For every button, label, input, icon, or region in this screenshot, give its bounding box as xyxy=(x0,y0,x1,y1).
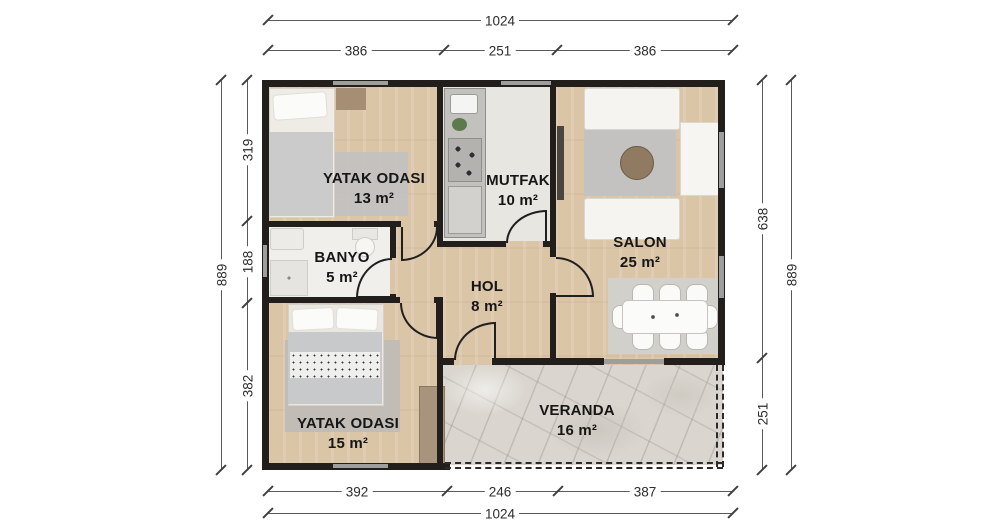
dim-left-total: 889 xyxy=(215,260,230,291)
wall-veranda-top-b xyxy=(492,358,604,365)
dim-bottom-seg-2: 246 xyxy=(485,485,516,500)
window-kitchen-top xyxy=(501,81,551,85)
room-name: SALON xyxy=(613,233,667,253)
room-label-bedroom2: YATAK ODASI 15 m² xyxy=(297,414,399,454)
chair-icon xyxy=(659,332,681,350)
dim-bottom-total: 1024 xyxy=(481,507,519,522)
nightstand-icon xyxy=(336,88,366,110)
wall-exterior-right xyxy=(718,80,725,365)
room-area: 10 m² xyxy=(486,191,550,211)
wall-veranda-top-c xyxy=(664,358,725,365)
sofa-icon xyxy=(584,88,680,130)
pillow-icon xyxy=(335,307,378,331)
dim-left-seg-1: 319 xyxy=(241,135,256,166)
room-label-kitchen: MUTFAK 10 m² xyxy=(486,171,550,211)
window-salon-right-2 xyxy=(719,256,724,298)
room-name: YATAK ODASI xyxy=(297,414,399,434)
throw-icon xyxy=(290,352,380,378)
dim-right-seg-2: 251 xyxy=(756,399,771,430)
room-label-bedroom1: YATAK ODASI 13 m² xyxy=(323,169,425,209)
stove-icon xyxy=(448,138,482,182)
veranda-edge-right xyxy=(722,365,724,467)
room-label-salon: SALON 25 m² xyxy=(613,233,667,273)
dim-bottom-seg-3: 387 xyxy=(630,485,661,500)
coffee-table-icon xyxy=(620,146,654,180)
window-bedroom2-bottom xyxy=(333,464,388,468)
room-name: MUTFAK xyxy=(486,171,550,191)
wall-exterior-top xyxy=(262,80,725,87)
shower-icon xyxy=(270,260,308,296)
room-name: VERANDA xyxy=(539,401,615,421)
wall-salon-lower xyxy=(550,293,556,365)
dim-left-seg-2: 188 xyxy=(241,247,256,278)
room-label-hall: HOL 8 m² xyxy=(471,277,503,317)
wall-kitchen-bottom-a xyxy=(437,241,506,247)
floor-plan: 1024 386 251 386 392 246 387 1024 889 31… xyxy=(0,0,1000,528)
room-area: 16 m² xyxy=(539,421,615,441)
sink-icon xyxy=(450,94,478,114)
dining-table-icon xyxy=(622,300,708,334)
cabinet-icon xyxy=(680,122,720,196)
window-bathroom-left xyxy=(263,245,267,277)
veranda-edge-bottom xyxy=(445,462,723,464)
wall-kitchen-salon xyxy=(550,80,556,257)
tv-icon xyxy=(557,126,564,200)
room-area: 25 m² xyxy=(613,253,667,273)
chair-icon xyxy=(632,332,654,350)
chair-icon xyxy=(686,332,708,350)
dim-left-seg-3: 382 xyxy=(241,371,256,402)
window-salon-right-1 xyxy=(719,132,724,188)
bath-sink-icon xyxy=(270,228,304,250)
pillow-icon xyxy=(291,307,334,331)
window-bedroom1-top xyxy=(333,81,388,85)
room-area: 13 m² xyxy=(323,189,425,209)
dim-right-total: 889 xyxy=(785,260,800,291)
pillow-icon xyxy=(272,91,328,121)
room-name: HOL xyxy=(471,277,503,297)
wall-bedroom1-bottom-a xyxy=(262,221,401,227)
dim-right-seg-1: 638 xyxy=(756,204,771,235)
wall-veranda-top-a xyxy=(443,358,454,365)
room-area: 5 m² xyxy=(314,268,369,288)
dim-top-total: 1024 xyxy=(481,14,519,29)
room-label-veranda: VERANDA 16 m² xyxy=(539,401,615,441)
wall-bathroom-right-a xyxy=(390,221,396,258)
window-salon-veranda xyxy=(604,359,664,364)
dim-top-seg-1: 386 xyxy=(341,44,372,59)
kitchen-cabinet-icon xyxy=(448,186,482,234)
dim-top-seg-3: 386 xyxy=(630,44,661,59)
room-area: 8 m² xyxy=(471,297,503,317)
room-area: 15 m² xyxy=(297,434,399,454)
dim-bottom-seg-1: 392 xyxy=(342,485,373,500)
dim-top-seg-2: 251 xyxy=(485,44,516,59)
veranda-edge-bottom xyxy=(445,467,723,469)
room-label-bathroom: BANYO 5 m² xyxy=(314,248,369,288)
veranda-edge-right xyxy=(716,365,718,467)
room-name: YATAK ODASI xyxy=(323,169,425,189)
plant-icon xyxy=(452,118,467,131)
room-name: BANYO xyxy=(314,248,369,268)
